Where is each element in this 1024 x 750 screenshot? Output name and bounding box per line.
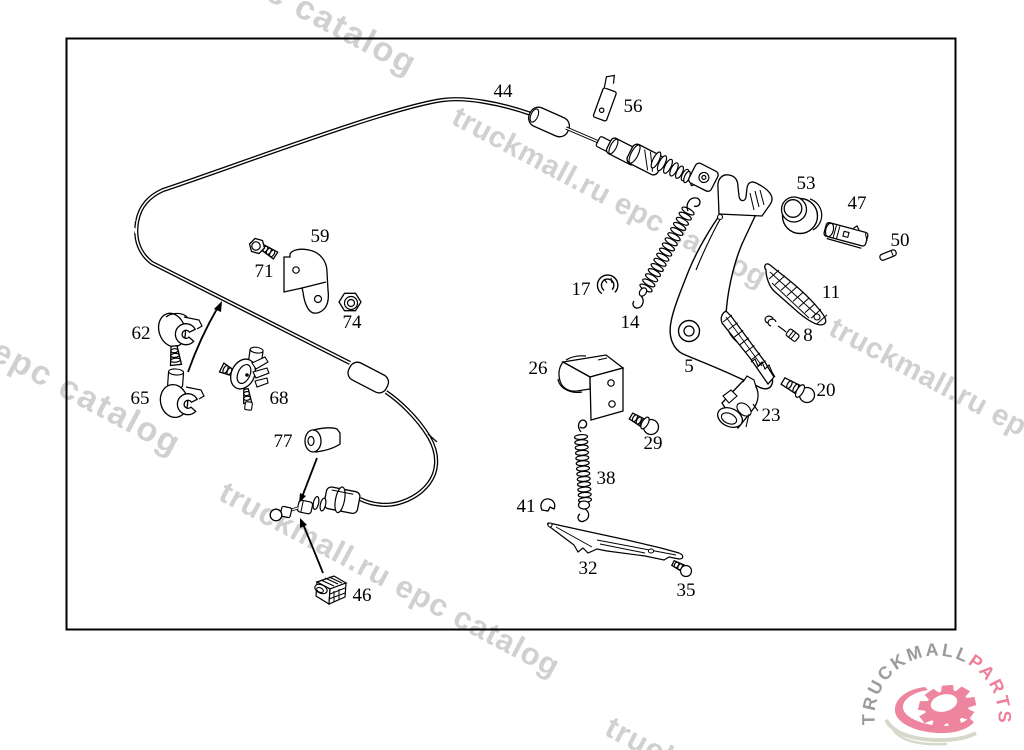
svg-text:14: 14	[621, 312, 641, 333]
svg-text:56: 56	[624, 96, 643, 117]
svg-text:26: 26	[529, 358, 548, 379]
svg-text:46: 46	[353, 585, 372, 606]
svg-text:23: 23	[762, 405, 781, 426]
svg-text:77: 77	[274, 431, 293, 452]
svg-text:29: 29	[644, 433, 663, 454]
svg-text:53: 53	[797, 173, 816, 194]
svg-text:50: 50	[891, 230, 910, 251]
svg-text:44: 44	[494, 81, 514, 102]
svg-text:35: 35	[677, 580, 696, 601]
svg-text:71: 71	[255, 261, 274, 282]
svg-text:20: 20	[817, 380, 836, 401]
svg-text:65: 65	[131, 388, 150, 409]
svg-text:truckmall.ru epc catalog: truckmall.ru epc catalog	[18, 0, 424, 83]
svg-text:truckmall.ru epc catalog: truckmall.ru epc catalog	[824, 311, 1024, 505]
svg-text:11: 11	[822, 282, 840, 303]
svg-text:47: 47	[848, 193, 867, 214]
svg-text:truckmall.ru epc catalog: truckmall.ru epc catalog	[0, 224, 188, 464]
svg-text:5: 5	[684, 356, 694, 377]
svg-text:74: 74	[343, 312, 363, 333]
svg-text:59: 59	[311, 226, 330, 247]
svg-text:32: 32	[579, 558, 598, 579]
svg-text:38: 38	[597, 468, 616, 489]
svg-text:68: 68	[270, 388, 289, 409]
svg-text:8: 8	[803, 325, 813, 346]
svg-text:62: 62	[132, 323, 151, 344]
svg-text:17: 17	[572, 279, 591, 300]
svg-text:41: 41	[517, 496, 536, 517]
